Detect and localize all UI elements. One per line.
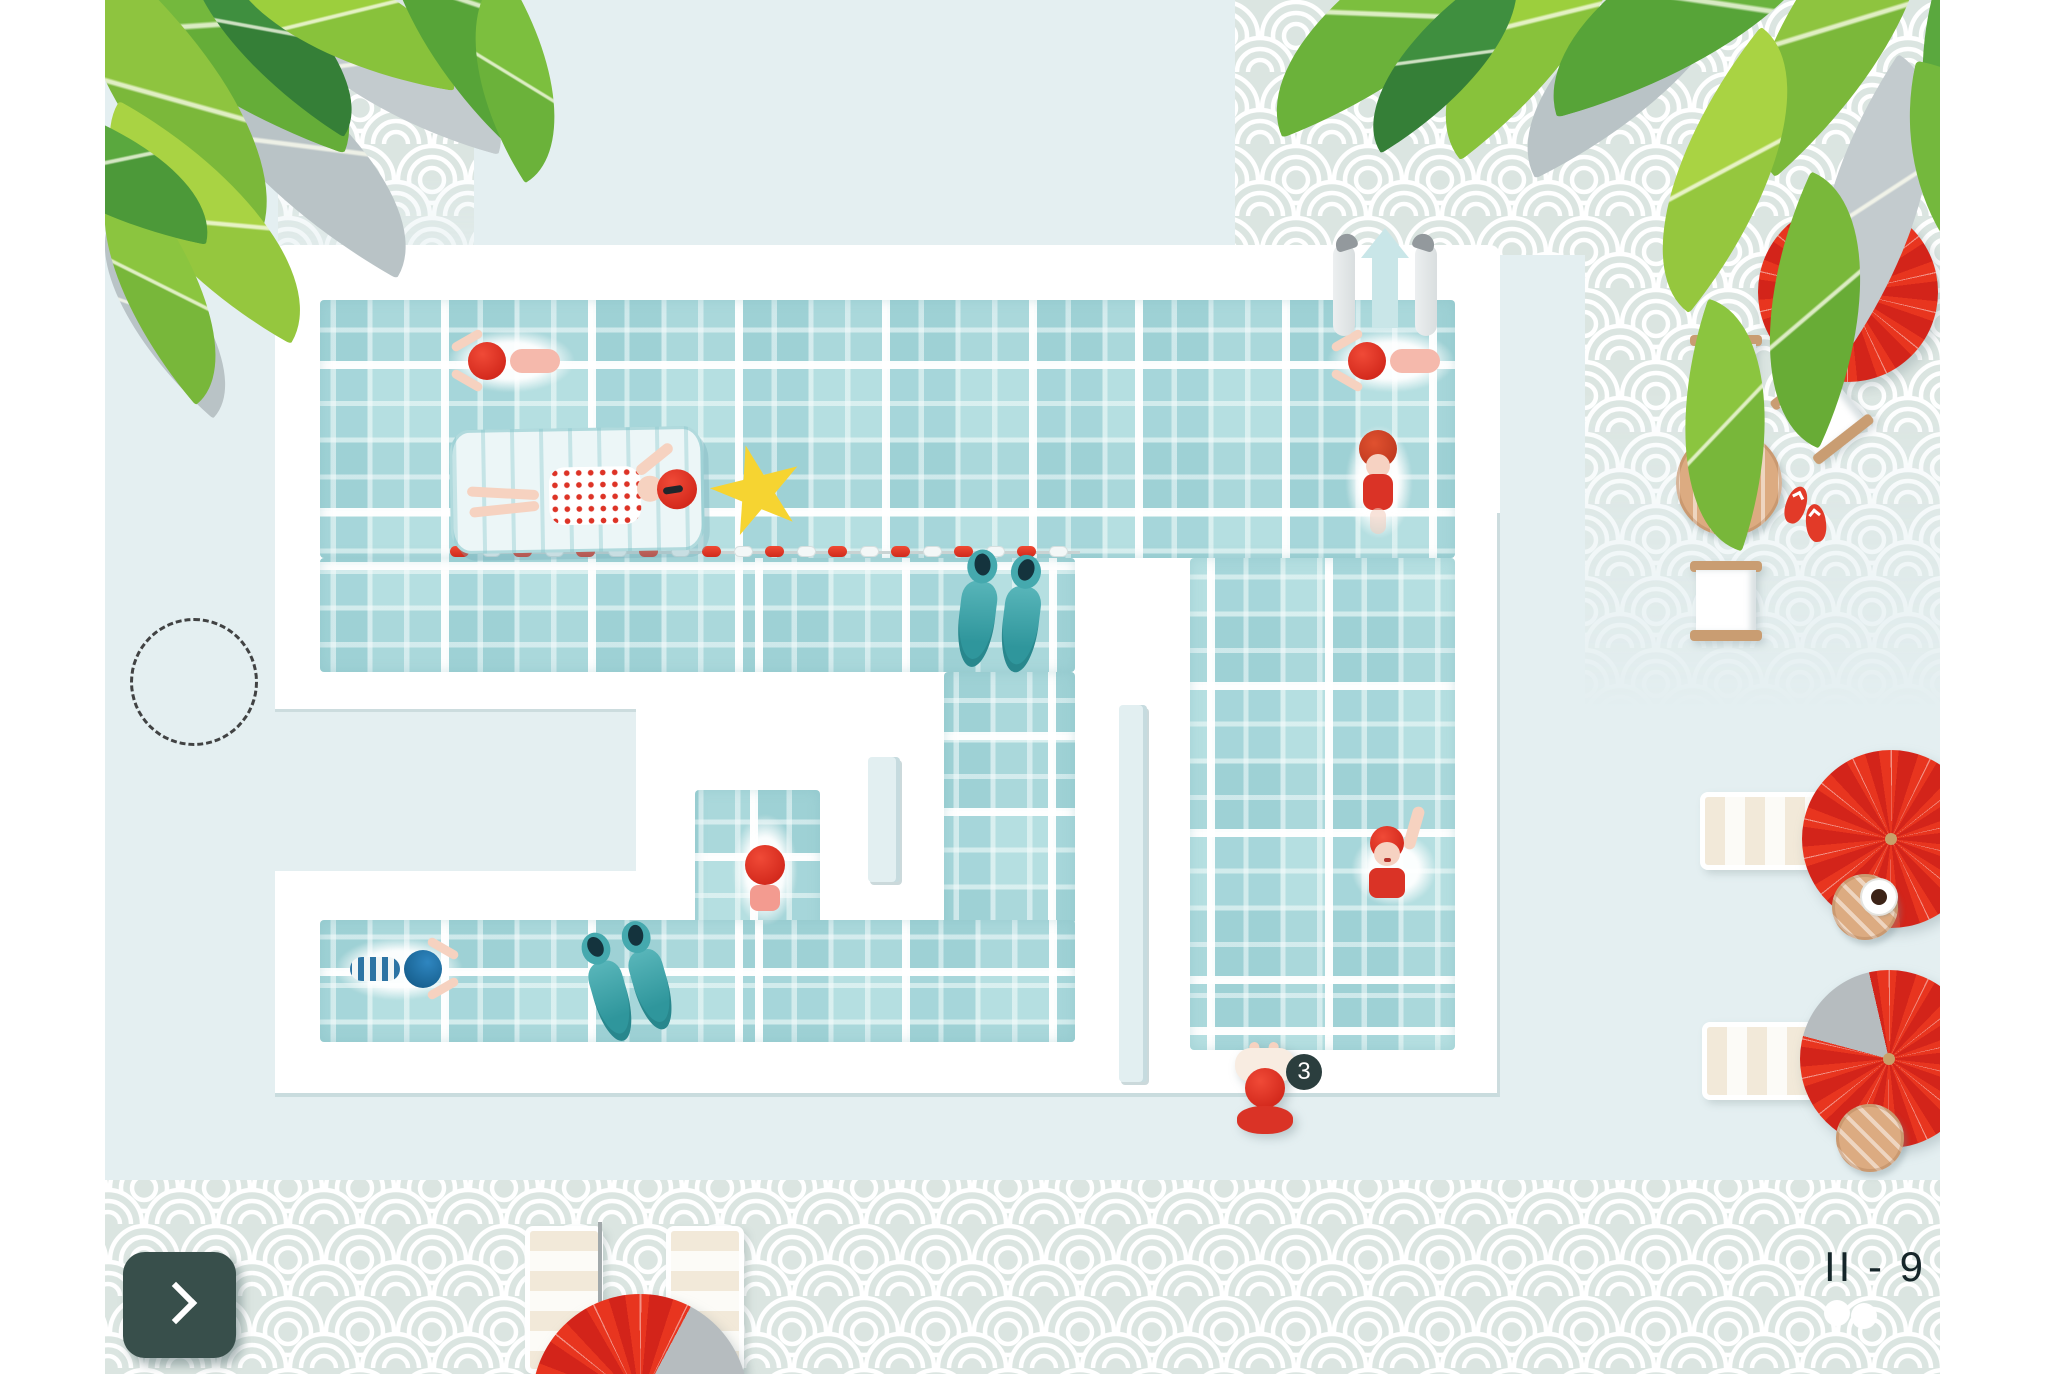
sunbather-swimsuit: [549, 466, 642, 526]
ladder-rail: [1333, 244, 1355, 336]
sunbather-leg: [469, 501, 540, 518]
left-letterbox: [0, 0, 105, 1374]
deck-chair-3: [1690, 561, 1762, 641]
swim-cap: [468, 342, 506, 380]
swim-cap: [404, 950, 442, 988]
game-stage: 3 II - 9: [0, 0, 2048, 1374]
swimmer-legs: [1370, 508, 1386, 534]
pool-water-right-arm: [1190, 558, 1455, 1050]
swimmer-suit: [1363, 474, 1393, 510]
badge-count: 3: [1297, 1058, 1310, 1085]
rope-float: [702, 546, 721, 557]
progress-dot: [1851, 1303, 1877, 1329]
float-mattress: [449, 426, 705, 554]
swim-fins-top: [953, 546, 1047, 677]
swimmer-red-notch[interactable]: [733, 815, 797, 927]
swimmer-backstroke[interactable]: [1346, 426, 1412, 538]
rope-float: [860, 546, 879, 557]
ladder-rail: [1415, 244, 1437, 336]
swimmer-red-right-arm[interactable]: [1352, 806, 1436, 918]
thin-wall-2: [1119, 705, 1147, 1082]
next-button[interactable]: [123, 1252, 236, 1358]
dive-queue-badge: 3: [1286, 1054, 1322, 1090]
progress-dot: [1824, 1300, 1850, 1326]
right-letterbox: [1940, 0, 2048, 1374]
coffee-cup-center: [1871, 889, 1887, 905]
rope-float: [1049, 546, 1068, 557]
sunbather-leg: [467, 486, 539, 500]
swimmer-face: [1374, 842, 1400, 866]
swim-cap: [745, 845, 785, 885]
rope-float: [797, 546, 816, 557]
swimmer-red-top-right[interactable]: [1328, 330, 1454, 392]
chevron-right-icon: [155, 1282, 197, 1324]
rope-float: [765, 546, 784, 557]
rope-float: [923, 546, 942, 557]
thin-wall-1: [868, 757, 900, 882]
rope-float: [828, 546, 847, 557]
swimmer-lips: [1384, 858, 1391, 862]
flip-flop-strap: [1792, 491, 1804, 503]
swimmer-red-top-left[interactable]: [448, 330, 574, 392]
swimmer-body: [750, 885, 780, 911]
level-indicator: II - 9: [1780, 1243, 1970, 1291]
ladder-rail-cap: [1333, 231, 1359, 253]
swimmer-body: [1390, 349, 1440, 373]
umbrella-pole: [598, 1222, 602, 1302]
swimmer-blue-bottom-left[interactable]: [336, 938, 462, 1000]
exit-arrow-icon: [1361, 228, 1409, 258]
dashed-circle-marker: [130, 618, 258, 746]
swim-cap: [1245, 1068, 1285, 1108]
exit-arrow-shaft: [1372, 256, 1398, 328]
chair-wood-bar: [1690, 630, 1762, 641]
side-table-2: [1836, 1104, 1904, 1172]
flip-flop-strap: [1808, 508, 1821, 521]
rope-float: [891, 546, 910, 557]
pool-ladder: [1333, 220, 1437, 338]
chair-canvas: [1696, 570, 1756, 632]
rope-float: [734, 546, 753, 557]
swimmer-suit: [1237, 1106, 1293, 1134]
swimmer-trunks: [350, 957, 400, 981]
swimmer-body: [510, 349, 560, 373]
swim-cap: [1348, 342, 1386, 380]
swimmer-suit: [1369, 868, 1405, 898]
